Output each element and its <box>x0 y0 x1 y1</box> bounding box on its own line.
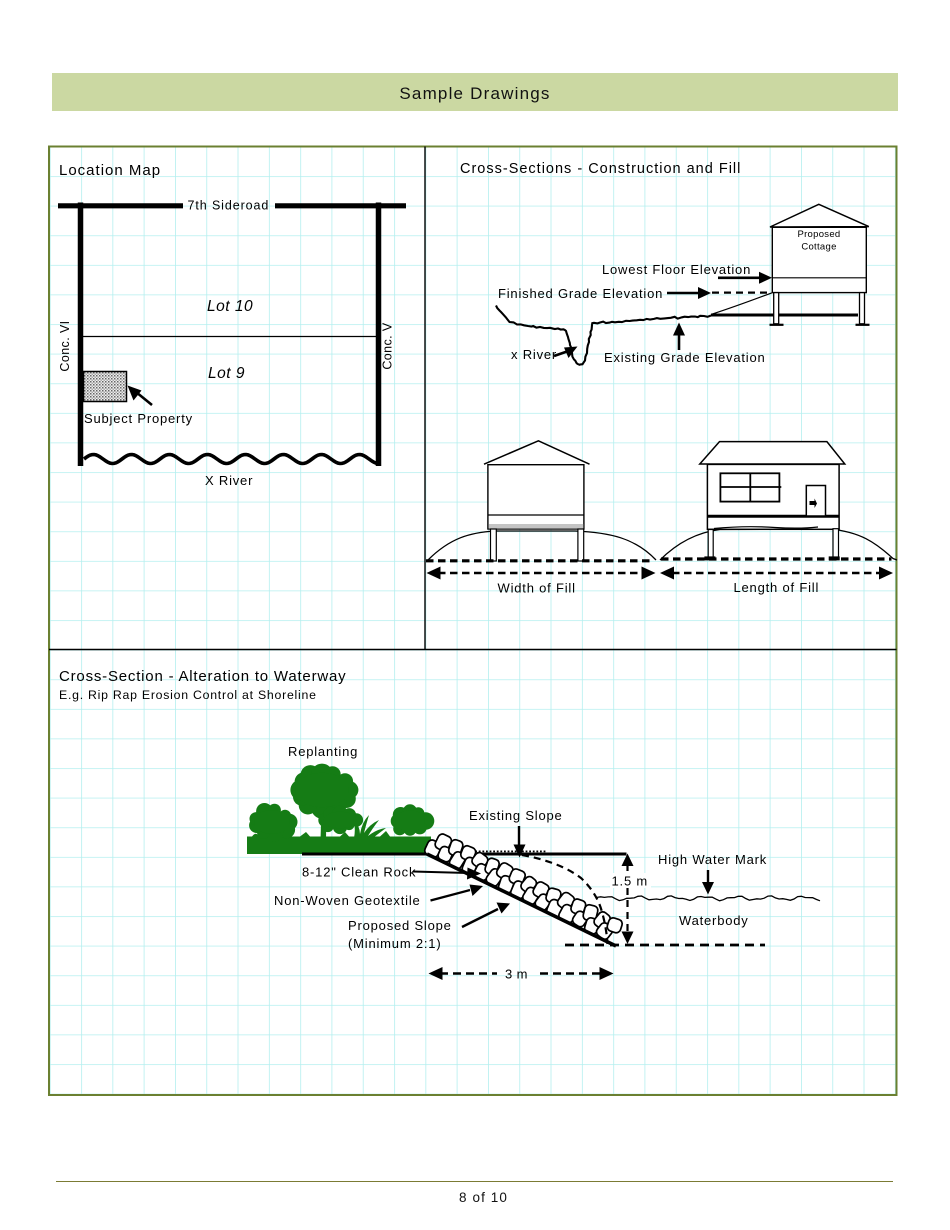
svg-text:Lot 9: Lot 9 <box>208 365 245 382</box>
svg-text:Location Map: Location Map <box>59 162 161 179</box>
svg-text:Length of Fill: Length of Fill <box>734 580 820 595</box>
svg-text:Width of Fill: Width of Fill <box>498 581 576 596</box>
svg-text:X River: X River <box>205 473 253 488</box>
svg-text:3 m: 3 m <box>505 967 528 982</box>
svg-text:Waterbody: Waterbody <box>679 913 749 928</box>
svg-text:Cottage: Cottage <box>801 242 836 253</box>
svg-text:x River: x River <box>511 347 557 362</box>
svg-text:Lowest Floor Elevation: Lowest Floor Elevation <box>602 262 751 277</box>
svg-text:(Minimum 2:1): (Minimum 2:1) <box>348 936 441 951</box>
svg-text:Proposed Slope: Proposed Slope <box>348 918 452 933</box>
svg-text:8-12" Clean Rock: 8-12" Clean Rock <box>302 865 416 880</box>
svg-text:Proposed: Proposed <box>797 229 840 240</box>
svg-text:High Water Mark: High Water Mark <box>658 852 767 867</box>
svg-text:1.5 m: 1.5 m <box>612 874 649 889</box>
svg-text:Cross-Sections - Construction: Cross-Sections - Construction and Fill <box>460 161 741 177</box>
svg-text:E.g. Rip Rap Erosion Control a: E.g. Rip Rap Erosion Control at Shorelin… <box>59 688 317 702</box>
svg-text:Replanting: Replanting <box>288 744 358 759</box>
svg-text:Conc. V: Conc. V <box>381 322 395 370</box>
svg-text:Non-Woven Geotextile: Non-Woven Geotextile <box>274 893 421 908</box>
svg-text:Subject Property: Subject Property <box>84 411 193 426</box>
svg-text:Existing Slope: Existing Slope <box>469 808 563 823</box>
svg-text:Conc. VI: Conc. VI <box>58 320 72 371</box>
svg-text:Cross-Section - Alteration to: Cross-Section - Alteration to Waterway <box>59 668 346 685</box>
svg-text:7th Sideroad: 7th Sideroad <box>188 199 270 213</box>
svg-text:Lot 10: Lot 10 <box>207 298 253 315</box>
svg-text:Finished Grade Elevation: Finished Grade Elevation <box>498 286 663 301</box>
svg-text:Existing Grade Elevation: Existing Grade Elevation <box>604 350 766 365</box>
